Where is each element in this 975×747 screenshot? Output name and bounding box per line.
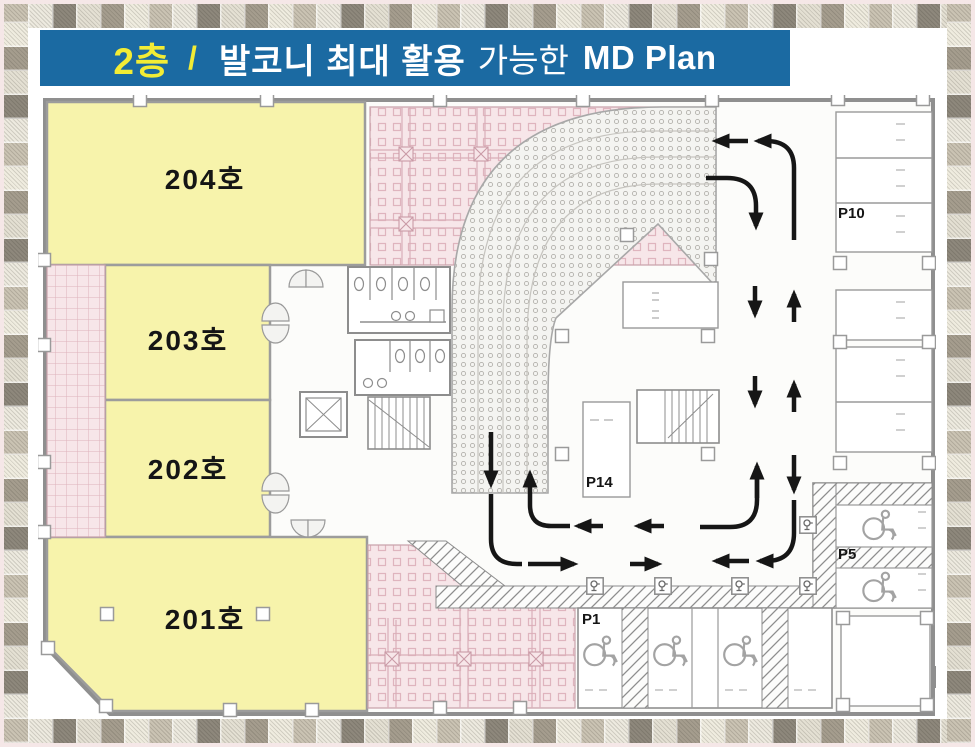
parking-label-p5: P5 (838, 546, 856, 563)
parking-label-p14: P14 (586, 474, 613, 491)
mosaic-border-top (4, 4, 971, 28)
title-separator: / (188, 40, 197, 77)
title-md-plan: MD Plan (583, 39, 717, 77)
title-bar: 2층 / 발코니 최대 활용 가능한 MD Plan (40, 30, 790, 86)
title-normal: 가능한 (478, 34, 569, 82)
room-label-204: 204호 (165, 158, 245, 198)
room-label-203: 203호 (148, 319, 228, 359)
room-label-201: 201호 (165, 598, 245, 638)
mosaic-border-right (947, 4, 971, 743)
title-emphasis: 발코니 최대 활용 (219, 34, 466, 83)
parking-label-p1: P1 (582, 611, 600, 628)
floor-label: 2층 (113, 31, 170, 85)
slide: 2층 / 발코니 최대 활용 가능한 MD Plan (0, 0, 975, 747)
mosaic-border-left (4, 4, 28, 743)
room-label-202: 202호 (148, 448, 228, 488)
parking-label-p10: P10 (838, 205, 865, 222)
